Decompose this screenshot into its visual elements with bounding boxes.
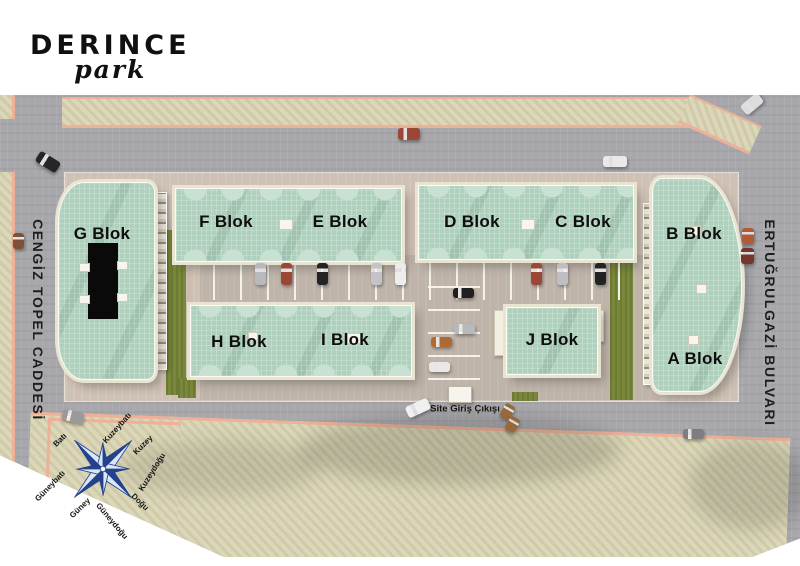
roof-vent (117, 293, 128, 302)
block-label-f: F Blok (199, 212, 253, 232)
parked-car (429, 362, 450, 372)
parked-car (395, 263, 406, 285)
entrance-gate (448, 386, 472, 403)
parked-car (557, 263, 568, 285)
car (740, 92, 765, 115)
block-label-c: C Blok (555, 212, 611, 232)
parked-car (281, 263, 292, 285)
street-label-left: CENGİZ TOPEL CADDESİ (30, 219, 46, 421)
g-block-roof-court (88, 243, 118, 319)
site-plan-screenshot: DERINCE park (0, 0, 800, 566)
block-label-i: I Blok (321, 330, 369, 350)
hedge (512, 392, 538, 401)
logo: DERINCE park (30, 30, 191, 84)
roof-vent (79, 295, 90, 304)
block-label-h: H Blok (211, 332, 267, 352)
roof-vent (521, 219, 535, 230)
top-sidewalk (62, 97, 692, 128)
block-label-g: G Blok (74, 224, 131, 244)
shadow (690, 440, 800, 530)
parked-car (454, 324, 475, 334)
parked-car (453, 288, 474, 298)
parked-car (317, 263, 328, 285)
street-label-right: ERTUĞRULGAZİ BULVARI (762, 219, 778, 426)
left-sidewalk (0, 95, 15, 119)
parked-car (595, 263, 606, 285)
left-sidewalk (0, 172, 15, 462)
car (683, 429, 704, 439)
compass-label-e: Doğu (130, 492, 151, 513)
parked-car (371, 263, 382, 285)
entrance-label: Site Giriş Çıkışı (430, 404, 500, 415)
compass-rose: Kuzeybatı Kuzey Kuzeydoğu Doğu Güneydoğu… (38, 408, 178, 538)
car (741, 248, 754, 264)
roof-vent (79, 263, 90, 272)
car (13, 233, 24, 249)
block-label-j: J Blok (526, 330, 579, 350)
parked-car (431, 337, 452, 347)
block-label-d: D Blok (444, 212, 500, 232)
grass-patch (178, 378, 196, 398)
block-label-b: B Blok (666, 224, 722, 244)
car (603, 156, 627, 167)
roof-vent (279, 219, 293, 230)
block-label-e: E Blok (313, 212, 368, 232)
roof-vent (696, 284, 707, 294)
roof-vent (688, 335, 699, 345)
shadow (300, 415, 620, 485)
car (742, 228, 754, 244)
car (398, 128, 420, 140)
roof-vent (117, 261, 128, 270)
block-label-a: A Blok (667, 349, 722, 369)
parked-car (531, 263, 542, 285)
parked-car (255, 263, 266, 285)
car (35, 151, 62, 174)
